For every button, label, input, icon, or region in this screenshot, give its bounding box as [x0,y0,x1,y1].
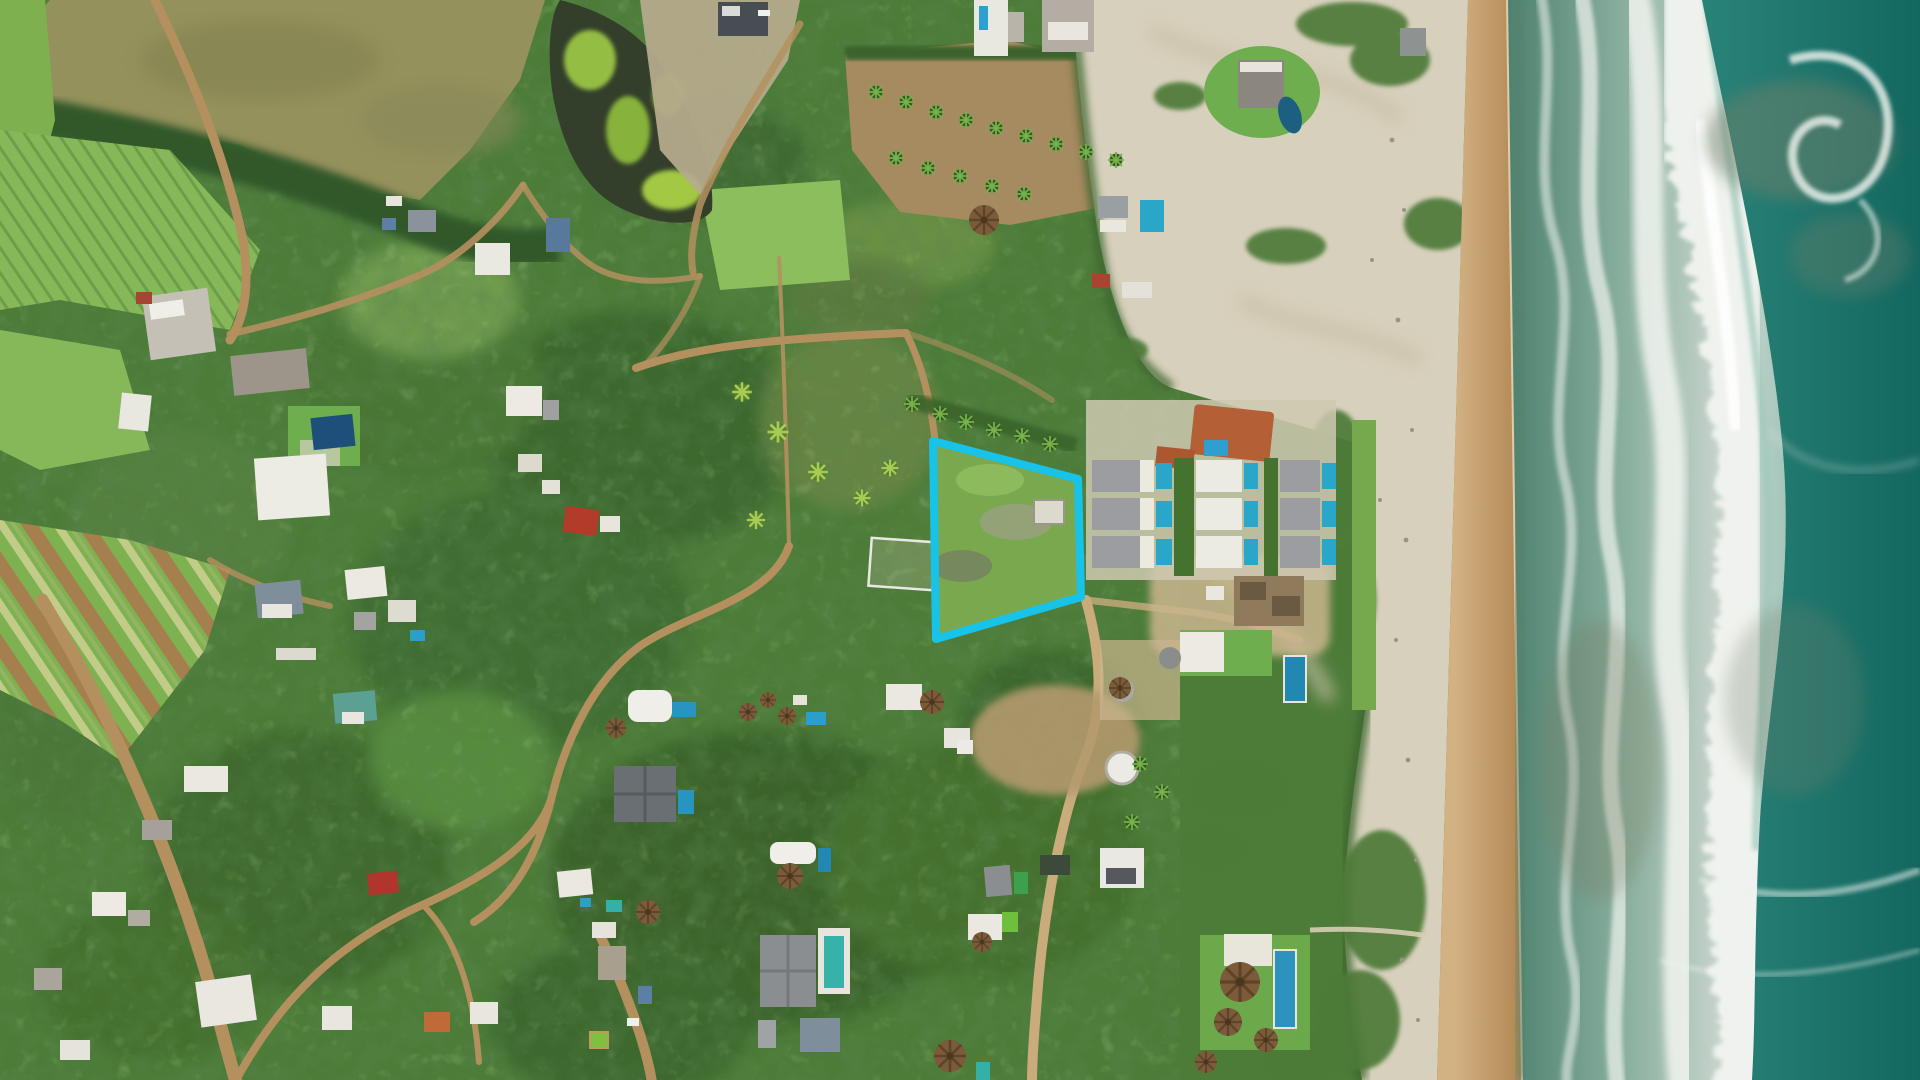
gray-roof [34,968,62,990]
villa-roof [1092,460,1140,492]
stone-roof [230,348,310,396]
palapa-roof [777,863,803,889]
palm-tree [1078,144,1094,160]
white-roof [184,766,228,792]
scrub [1104,338,1148,362]
scrub [1320,970,1400,1070]
villa-canopy [1196,498,1242,530]
villa-canopy [1196,460,1242,492]
palm-tree [1016,186,1032,202]
pool [824,936,844,988]
palm-tree [958,112,974,128]
roof-detail [1048,22,1088,40]
villa-grid [1092,458,1336,576]
scrub [1338,830,1426,970]
villa-roof [1280,536,1320,568]
white-roof [557,868,594,897]
palm-tree [932,406,948,422]
vehicle [758,10,770,16]
palapa-roof [972,932,992,952]
white-roof [386,196,402,206]
plunge-pool [1156,501,1172,527]
vehicle [627,1018,639,1026]
green-field [700,180,850,290]
villa-row [1092,460,1336,492]
white-roof [1100,220,1126,232]
pool [310,414,355,450]
palapa-roof [778,707,796,725]
white-roof [628,690,672,722]
palapa-roof [1214,1008,1242,1036]
shed-roof [758,1020,776,1048]
roof-detail [1240,62,1282,72]
blue-gray-roof [800,1018,840,1052]
pool [410,630,425,641]
roof-detail [722,6,740,16]
plunge-pool [1322,539,1336,565]
palm-tree [1042,436,1058,452]
scrub [1246,228,1326,264]
banana-palm [808,462,828,482]
white-roof [388,600,416,622]
plunge-pool [1244,463,1258,489]
white-roof [345,566,388,600]
palm-tree [1154,784,1170,800]
walled-lot [868,538,935,590]
plunge-pool [1244,539,1258,565]
roof-detail [1272,596,1300,616]
palm-tree [1124,814,1140,830]
palapa-roof [760,692,776,708]
palm-tree [1108,152,1124,168]
villa-terrace [1140,536,1154,568]
white-roof [1180,632,1224,672]
pool [818,848,831,872]
villa-roof [1280,460,1320,492]
plunge-pool [1322,463,1336,489]
scrub [1154,82,1206,110]
aerial-photo [0,0,1920,1080]
white-roof [254,454,330,521]
palm-tree [958,414,974,430]
aerial-photo-canvas [0,0,1920,1080]
shack-roof [518,454,542,472]
white-roof [60,1040,90,1060]
banana-palm [732,382,752,402]
shack-roof [793,695,807,705]
pasture-shading [140,20,380,100]
banana-palm [747,511,765,529]
gray-roof [543,400,559,420]
palm-tree [1048,136,1064,152]
pool [678,790,694,814]
roof-detail [342,712,364,724]
white-roof [195,974,257,1027]
palapa-roof [1254,1028,1278,1052]
banana-palm [882,460,899,477]
banana-palm [854,490,871,507]
gray-roof [408,210,436,232]
palapa-roof [1195,1051,1217,1073]
terracotta-roof [1190,404,1275,462]
red-roof [367,870,399,895]
pool [1274,950,1296,1028]
white-roof [600,516,620,532]
white-roof [322,1006,352,1030]
palapa-roof [969,205,999,235]
white-roof [770,842,816,864]
lawn [1352,420,1376,710]
palm-tree [1014,428,1030,444]
villa-canopy [1196,536,1242,568]
blue-roof [382,218,396,230]
sediment-plume [1725,605,1865,795]
red-roof [1092,274,1110,288]
scrub [1184,830,1244,866]
gray-roof [142,820,172,840]
palapa-roof [606,718,626,738]
pool [580,898,591,907]
white-roof [1122,282,1152,298]
red-roof [562,506,599,536]
palm-tree [988,120,1004,136]
lot-dark-patch [932,550,992,582]
white-roof [886,684,922,710]
scrub [1194,764,1286,816]
pond-algae [564,30,616,90]
white-roof [1224,934,1272,966]
palapa-roof [1220,962,1260,1002]
palm-tree [1018,128,1034,144]
shack-roof [957,740,973,754]
palm-tree [920,160,936,176]
plunge-pool [1156,539,1172,565]
white-roof [470,1002,498,1024]
plunge-pool [1322,501,1336,527]
construction-roof [598,946,626,980]
palm-tree [888,150,904,166]
villa-roof [1280,498,1320,530]
banana-palm [768,422,789,443]
shed-roof [276,648,316,660]
construction-roof [142,288,216,361]
villa-row [1092,536,1336,568]
gray-roof [1098,196,1128,218]
shack-roof [542,480,560,494]
white-roof [118,393,152,432]
palapa-roof [1109,677,1131,699]
surf-sediment [1540,620,1660,900]
palapa-roof [934,1040,966,1072]
roof-detail [262,604,292,618]
pool [1140,200,1164,232]
villa-roof [1092,498,1140,530]
palm-tree [868,84,884,100]
pool [606,900,622,912]
roof-detail [1106,868,1136,884]
plunge-pool [1244,501,1258,527]
gray-roof [1400,28,1426,56]
hedge [1174,458,1194,576]
palm-tree [904,396,920,412]
red-roof [136,292,152,304]
palapa-roof [920,690,944,714]
palm-tree [952,168,968,184]
white-roof [475,243,510,275]
pasture-shading [360,84,520,156]
gray-roof [1008,12,1024,42]
villa-terrace [1140,460,1154,492]
lawn-strip [1002,912,1018,932]
villa-row [1092,498,1336,530]
pool [806,712,826,725]
gray-roof [984,865,1013,897]
sediment-plume [1790,213,1910,297]
white-roof [92,892,126,916]
solar-panels [1040,855,1070,875]
blue-tarp [638,986,652,1004]
palapa-roof [1159,647,1181,669]
shallow-dark-strip [1516,0,1524,1080]
lot-grass-patch [956,464,1024,496]
blue-roof [546,218,570,252]
palm-tree [898,94,914,110]
palapa-roof [636,900,660,924]
dome-roof [1106,752,1138,784]
green-pool [1014,872,1028,894]
pool [979,6,988,30]
pool [976,1062,990,1080]
gray-roof [354,612,376,630]
palm-tree [986,422,1002,438]
palm-tree [928,104,944,120]
orange-roof [424,1012,450,1032]
roof-detail [1240,582,1266,600]
white-roof [506,386,542,416]
hedge [1264,458,1278,576]
pool [672,702,696,717]
palapa-roof [739,703,757,721]
lot-shack-roof [1034,500,1064,524]
shed-roof [1206,586,1224,600]
gray-roof [128,910,150,926]
villa-terrace [1140,498,1154,530]
plunge-pool [1156,463,1172,489]
palm-tree [984,178,1000,194]
pool [1284,656,1306,702]
green-pool [590,1032,608,1048]
pond-algae [606,96,650,164]
pool [1204,440,1228,456]
villa-roof [1092,536,1140,568]
palm-tree [1132,756,1148,772]
white-roof [592,922,616,938]
